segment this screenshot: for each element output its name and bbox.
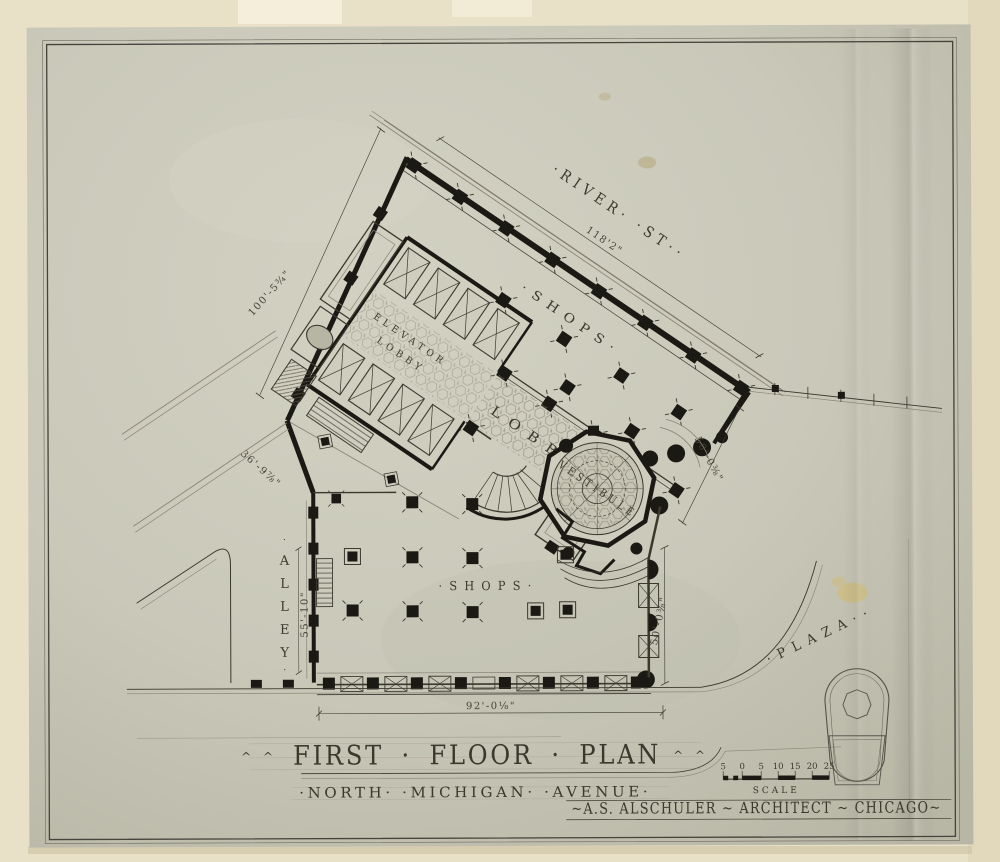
svg-text:A: A bbox=[279, 554, 290, 569]
mat-patch bbox=[452, 0, 532, 17]
svg-text:0: 0 bbox=[739, 762, 744, 772]
svg-text:20: 20 bbox=[807, 762, 818, 772]
svg-text:25: 25 bbox=[824, 762, 835, 772]
svg-text:L: L bbox=[280, 600, 289, 615]
svg-text:92'-0⅛": 92'-0⅛" bbox=[466, 701, 516, 712]
svg-text:55'-10": 55'-10" bbox=[300, 591, 311, 638]
west-stair bbox=[316, 559, 332, 607]
svg-text:E: E bbox=[280, 623, 290, 638]
svg-text:5: 5 bbox=[758, 762, 763, 772]
architect-signature: ~A.S. ALSCHULER ~ ARCHITECT ~ CHICAGO~ bbox=[571, 798, 941, 817]
stain bbox=[638, 156, 656, 168]
svg-text:5: 5 bbox=[720, 762, 725, 772]
title-ornament-right: ^ ^ bbox=[673, 748, 709, 762]
vestibule-pier bbox=[588, 426, 599, 436]
paper-crease bbox=[889, 28, 936, 840]
lower-shops-label: ·SHOPS· bbox=[439, 578, 539, 593]
svg-text:Y: Y bbox=[279, 646, 289, 661]
svg-text:10: 10 bbox=[773, 762, 784, 772]
vestibule-pier bbox=[642, 450, 658, 466]
paper-mottle bbox=[169, 118, 429, 243]
title-ornament-left: ^ ^ bbox=[241, 750, 277, 764]
sheet-shadow bbox=[28, 846, 972, 854]
drawing-sheet: 118'2" bbox=[0, 0, 973, 848]
svg-text:15: 15 bbox=[790, 762, 801, 772]
paper-mottle bbox=[380, 559, 741, 720]
svg-text:·: · bbox=[283, 666, 286, 676]
svg-text:L: L bbox=[280, 577, 289, 592]
drawing-title: FIRST · FLOOR · PLAN bbox=[293, 739, 661, 771]
svg-text:·: · bbox=[283, 536, 286, 546]
vestibule-pier bbox=[559, 439, 573, 453]
scanned-floor-plan: 118'2" bbox=[0, 0, 1000, 862]
scale-label: SCALE bbox=[753, 786, 800, 796]
corner-pier bbox=[637, 670, 655, 688]
alley-label: · A L L E Y · bbox=[279, 536, 290, 676]
stain bbox=[599, 93, 611, 101]
mat-patch bbox=[238, 0, 342, 24]
